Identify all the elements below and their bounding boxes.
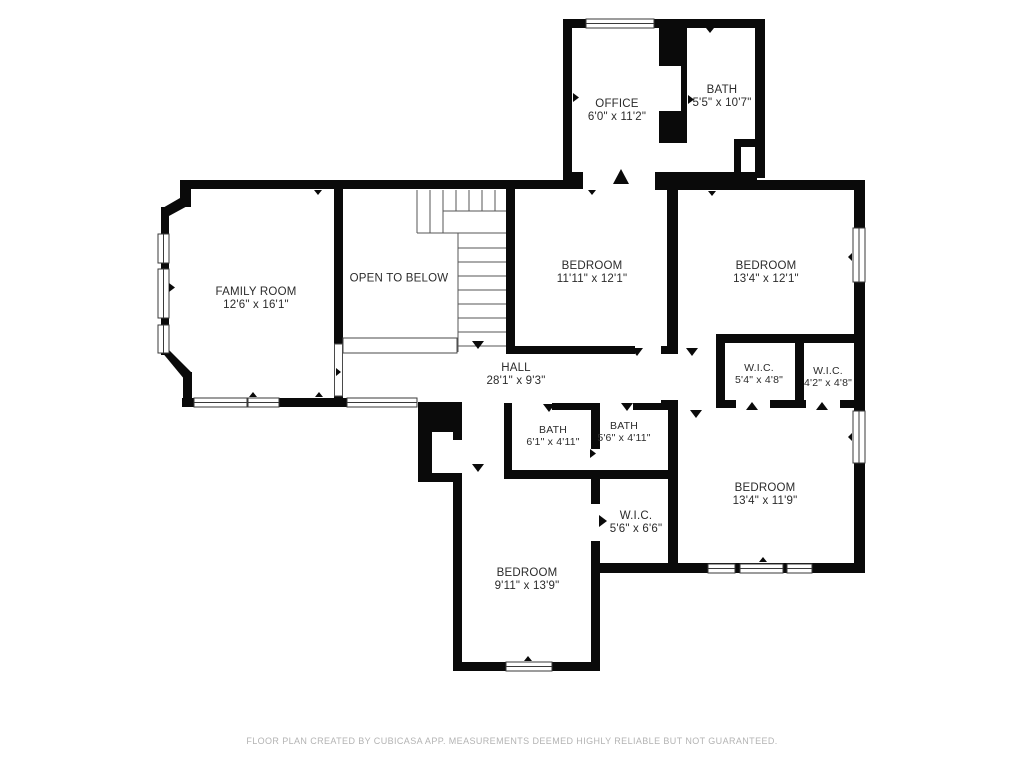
dimension-tick xyxy=(848,433,852,441)
window xyxy=(506,662,552,671)
room-name: BATH xyxy=(597,420,650,432)
room-label-bath-2: BATH 5'6" x 4'11" xyxy=(597,420,650,444)
wall xyxy=(755,19,765,178)
window xyxy=(787,564,812,573)
wall xyxy=(668,408,678,565)
window xyxy=(158,269,169,318)
wall xyxy=(591,478,600,504)
room-dims: 11'11" x 12'1" xyxy=(557,273,628,286)
wall xyxy=(563,19,572,184)
wall xyxy=(734,139,741,173)
wall xyxy=(716,334,725,408)
room-dims: 6'1" x 4'11" xyxy=(526,436,579,448)
room-label-wic-2: W.I.C. 4'2" x 4'8" xyxy=(804,365,852,389)
chimney-niche xyxy=(453,440,463,473)
window xyxy=(853,411,865,463)
room-label-bedroom-1: BEDROOM 11'11" x 12'1" xyxy=(557,260,628,286)
room-dims: 4'2" x 4'8" xyxy=(804,377,852,389)
wall xyxy=(506,346,635,354)
dimension-tick xyxy=(759,557,767,562)
window xyxy=(158,325,169,353)
door-arrow xyxy=(690,410,702,418)
wall xyxy=(334,188,343,344)
window xyxy=(586,19,654,28)
wall xyxy=(661,346,678,354)
room-name: OFFICE xyxy=(588,98,646,111)
wall xyxy=(655,180,863,190)
dimension-tick xyxy=(706,28,714,33)
room-dims: 5'5" x 10'7" xyxy=(692,97,751,110)
room-name: BEDROOM xyxy=(733,260,799,273)
window xyxy=(853,228,865,282)
room-name: BEDROOM xyxy=(733,482,798,495)
door-arrow xyxy=(746,402,758,410)
wall xyxy=(506,188,515,354)
room-label-bedroom-2: BEDROOM 13'4" x 12'1" xyxy=(733,260,799,286)
wall xyxy=(504,470,678,479)
room-label-family-room: FAMILY ROOM 12'6" x 16'1" xyxy=(215,286,296,312)
room-name: W.I.C. xyxy=(804,365,852,377)
room-name: BEDROOM xyxy=(557,260,628,273)
door-arrow xyxy=(621,403,633,411)
wall-niche xyxy=(659,66,681,111)
room-dims: 28'1" x 9'3" xyxy=(486,375,545,388)
door-arrow xyxy=(590,449,596,458)
door-arrow xyxy=(816,402,828,410)
open-well-railing xyxy=(343,338,457,353)
wall xyxy=(453,474,462,671)
room-name: OPEN TO BELOW xyxy=(350,273,449,286)
wall xyxy=(591,541,600,671)
room-label-bedroom-3: BEDROOM 13'4" x 11'9" xyxy=(733,482,798,508)
room-name: FAMILY ROOM xyxy=(215,286,296,299)
door-arrow xyxy=(573,93,579,102)
wall xyxy=(770,400,806,408)
room-dims: 12'6" x 16'1" xyxy=(215,299,296,312)
room-name: BEDROOM xyxy=(495,567,560,580)
dimension-tick xyxy=(848,253,852,261)
room-name: W.I.C. xyxy=(610,510,662,523)
wall xyxy=(504,403,512,478)
dimension-tick xyxy=(524,656,532,661)
dimension-tick xyxy=(588,190,596,195)
room-label-bath-1: BATH 6'1" x 4'11" xyxy=(526,424,579,448)
wall xyxy=(552,403,597,410)
room-name: HALL xyxy=(486,362,545,375)
dimension-tick xyxy=(315,392,323,397)
room-label-hall: HALL 28'1" x 9'3" xyxy=(486,362,545,388)
floor-plan: OFFICE 6'0" x 11'2" BATH 5'5" x 10'7" FA… xyxy=(0,0,1024,768)
door-arrow xyxy=(613,169,629,184)
door-arrow xyxy=(686,348,698,356)
room-dims: 5'6" x 6'6" xyxy=(610,523,662,536)
stairs-down-arrow xyxy=(472,341,484,349)
dimension-tick xyxy=(314,190,322,195)
room-dims: 9'11" x 13'9" xyxy=(495,580,560,593)
window xyxy=(248,398,279,407)
room-dims: 13'4" x 11'9" xyxy=(733,495,798,508)
window xyxy=(194,398,247,407)
room-name: BATH xyxy=(692,84,751,97)
chimney-niche xyxy=(432,432,453,473)
wall xyxy=(334,396,343,407)
door-arrow xyxy=(599,515,607,527)
room-dims: 6'0" x 11'2" xyxy=(588,111,646,124)
dimension-tick xyxy=(249,392,257,397)
room-label-bath-top: BATH 5'5" x 10'7" xyxy=(692,84,751,110)
door-arrow xyxy=(472,464,484,472)
window xyxy=(347,398,417,407)
door-arrow xyxy=(169,283,175,292)
wall xyxy=(795,334,804,408)
room-label-office: OFFICE 6'0" x 11'2" xyxy=(588,98,646,124)
wall xyxy=(180,180,583,189)
staircase xyxy=(417,190,506,352)
window xyxy=(158,234,169,263)
wall xyxy=(716,400,736,408)
room-label-bedroom-4: BEDROOM 9'11" x 13'9" xyxy=(495,567,560,593)
room-dims: 13'4" x 12'1" xyxy=(733,273,799,286)
wall xyxy=(667,188,678,354)
window xyxy=(740,564,783,573)
dimension-tick xyxy=(708,191,716,196)
room-label-open-to-below: OPEN TO BELOW xyxy=(350,273,449,286)
room-label-wic-3: W.I.C. 5'6" x 6'6" xyxy=(610,510,662,536)
room-dims: 5'6" x 4'11" xyxy=(597,432,650,444)
footer-disclaimer: FLOOR PLAN CREATED BY CUBICASA APP. MEAS… xyxy=(246,736,777,746)
window xyxy=(708,564,735,573)
room-name: BATH xyxy=(526,424,579,436)
room-label-wic-1: W.I.C. 5'4" x 4'8" xyxy=(735,362,783,386)
wall xyxy=(716,334,863,343)
room-dims: 5'4" x 4'8" xyxy=(735,374,783,386)
room-name: W.I.C. xyxy=(735,362,783,374)
